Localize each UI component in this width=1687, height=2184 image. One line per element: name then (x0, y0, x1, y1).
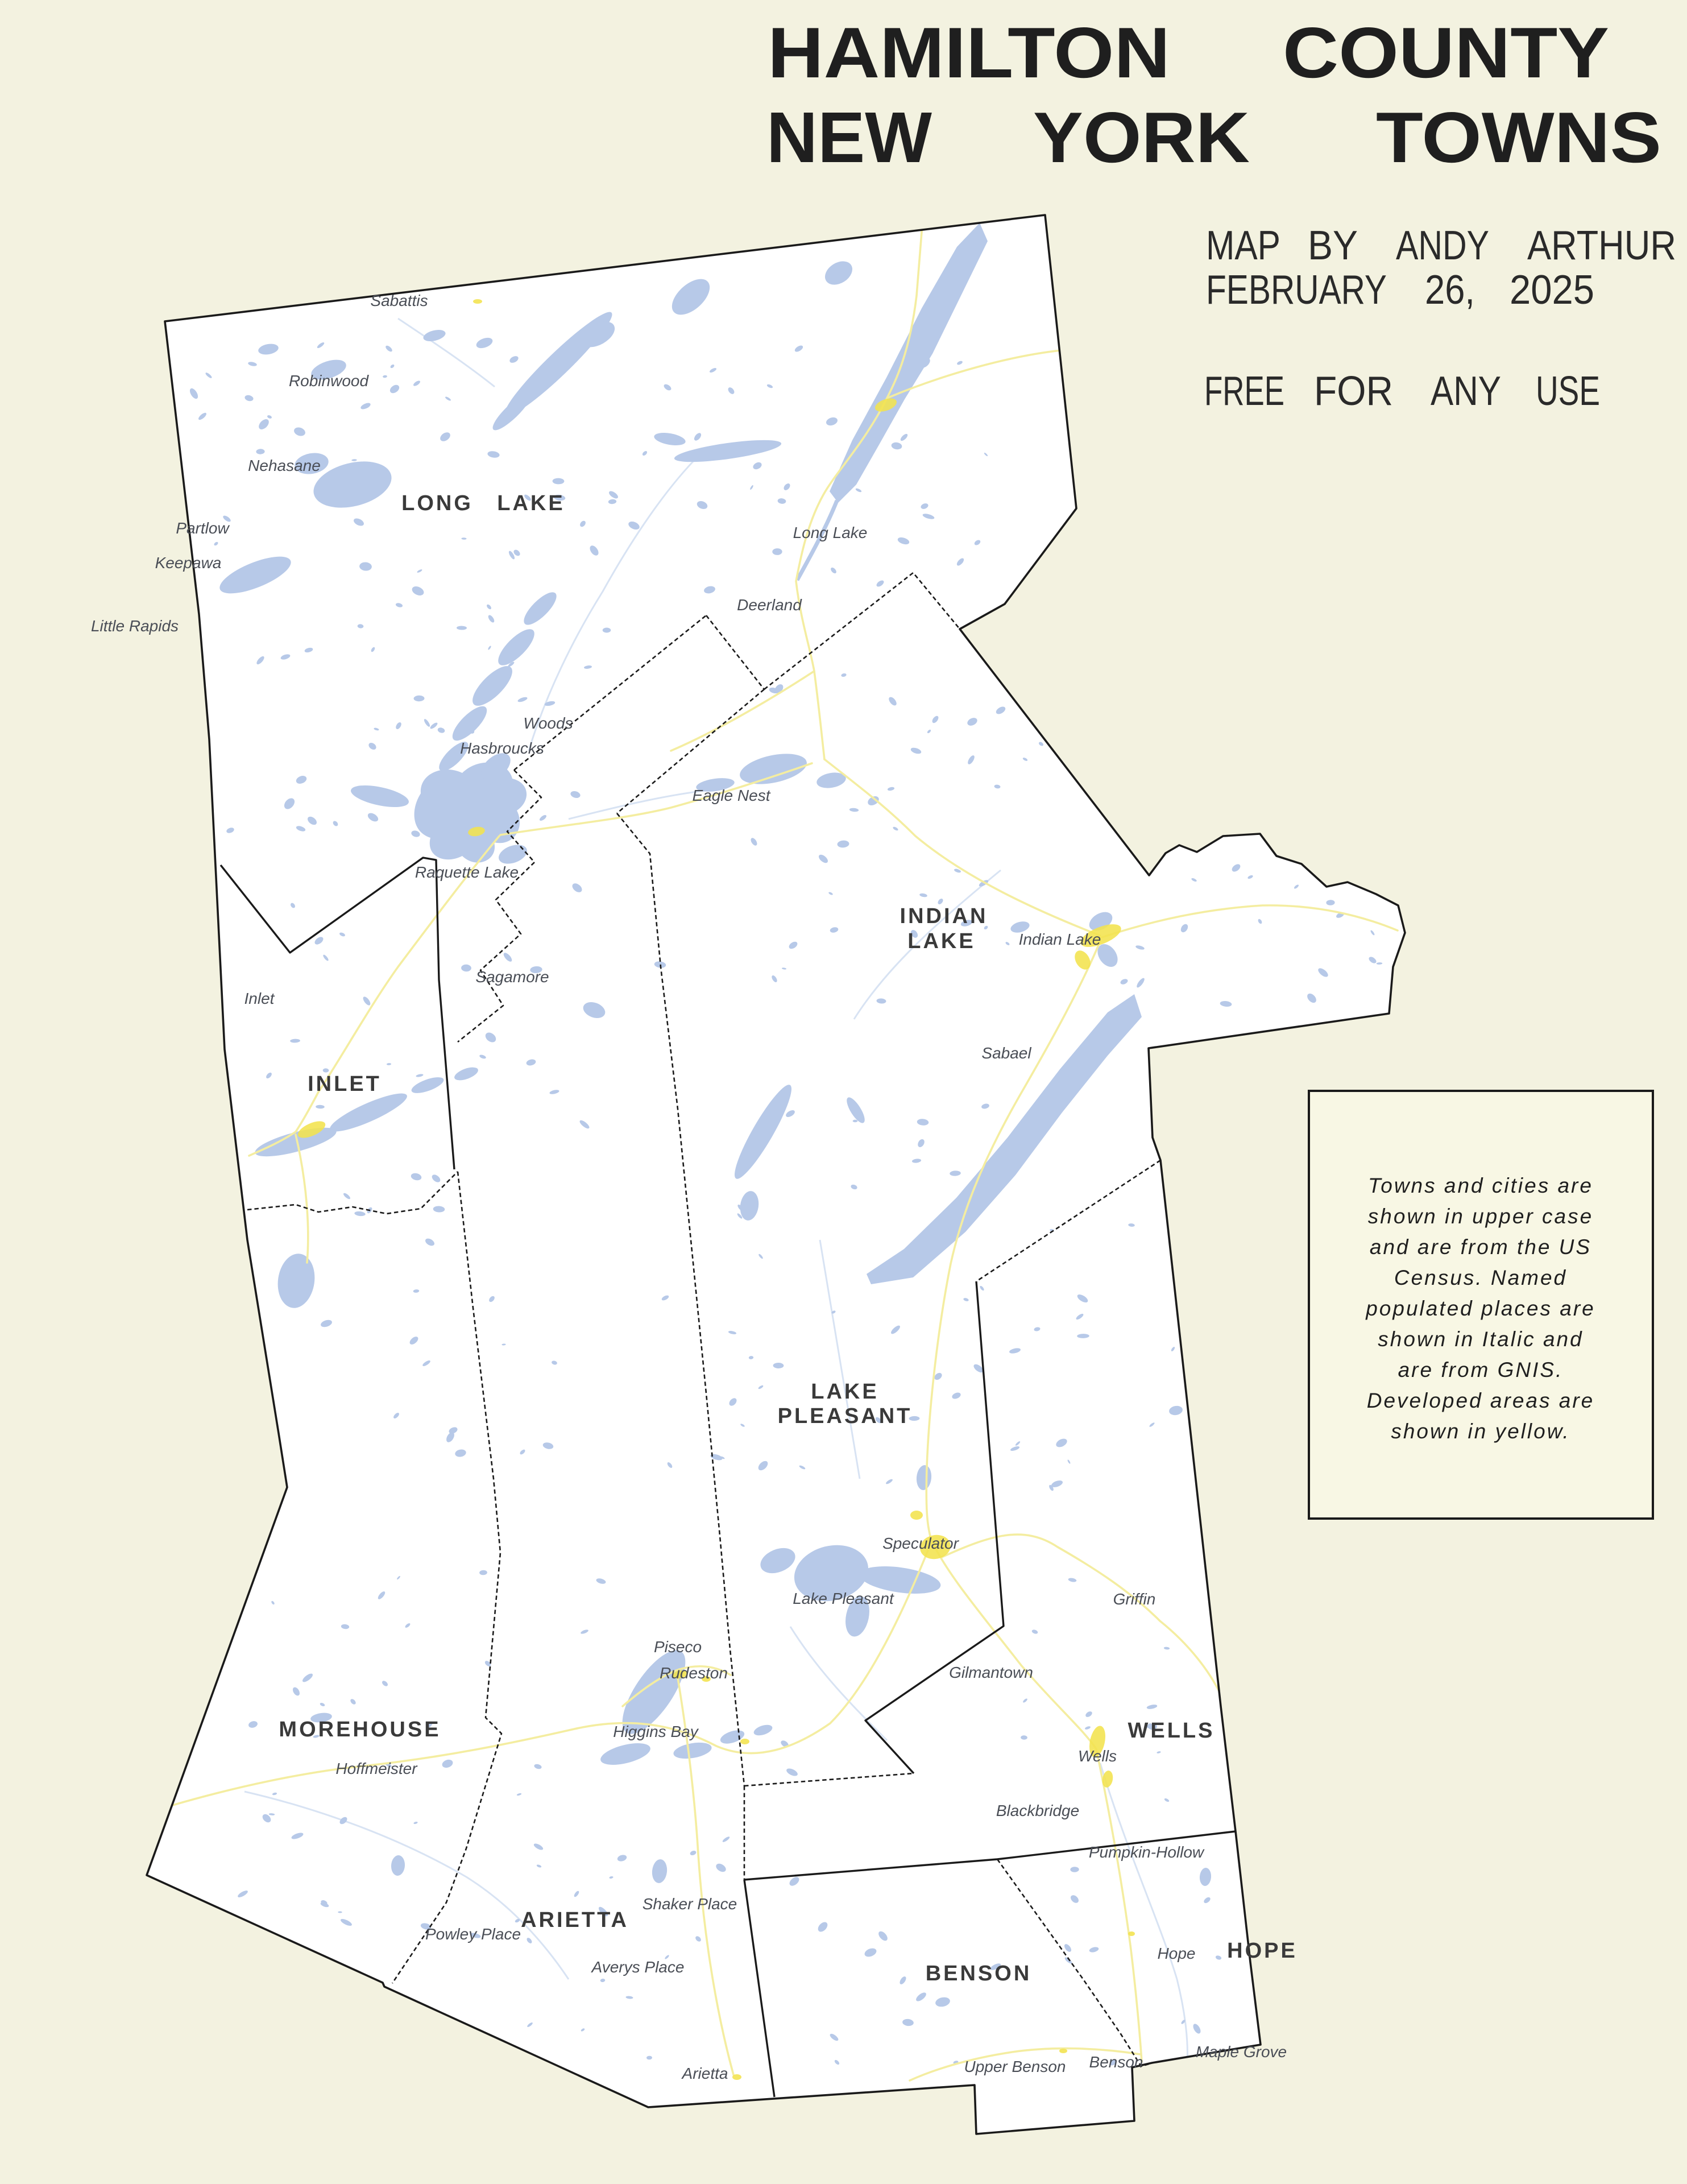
svg-text:FOR: FOR (1314, 369, 1393, 414)
svg-text:Towns and cities are: Towns and cities are (1368, 1174, 1593, 1197)
svg-text:Griffin: Griffin (1113, 1590, 1156, 1608)
svg-text:Census. Named: Census. Named (1394, 1266, 1567, 1289)
svg-text:Deerland: Deerland (737, 596, 802, 614)
svg-text:ARIETTA: ARIETTA (521, 1908, 629, 1932)
svg-text:Blackbridge: Blackbridge (996, 1802, 1079, 1819)
svg-text:Hope: Hope (1158, 1945, 1196, 1962)
svg-text:FEBRUARY: FEBRUARY (1206, 267, 1387, 313)
svg-text:Keepawa: Keepawa (155, 554, 222, 572)
svg-text:Benson: Benson (1089, 2053, 1143, 2071)
svg-text:Partlow: Partlow (176, 519, 230, 537)
svg-text:Nehasane: Nehasane (248, 457, 321, 474)
svg-text:Robinwood: Robinwood (289, 372, 370, 390)
svg-text:Pumpkin-Hollow: Pumpkin-Hollow (1089, 1843, 1205, 1861)
svg-text:HOPE: HOPE (1227, 1939, 1298, 1963)
svg-text:Rudeston: Rudeston (660, 1664, 728, 1682)
svg-text:ANY: ANY (1431, 369, 1501, 414)
svg-text:26,: 26, (1425, 267, 1475, 313)
svg-text:USE: USE (1536, 369, 1600, 414)
svg-text:Hasbroucks: Hasbroucks (460, 739, 544, 757)
svg-text:Eagle Nest: Eagle Nest (693, 787, 771, 804)
svg-text:Lake Pleasant: Lake Pleasant (793, 1590, 894, 1607)
svg-text:LAKE: LAKE (907, 929, 975, 953)
svg-text:MAP: MAP (1206, 223, 1280, 268)
svg-text:Sabattis: Sabattis (370, 292, 428, 309)
svg-text:Higgins Bay: Higgins Bay (613, 1723, 699, 1740)
svg-text:shown in Italic and: shown in Italic and (1378, 1327, 1583, 1351)
svg-text:FREE: FREE (1204, 369, 1284, 414)
svg-text:Averys Place: Averys Place (591, 1958, 685, 1976)
svg-text:populated places are: populated places are (1365, 1297, 1595, 1320)
svg-text:Inlet: Inlet (244, 990, 275, 1007)
svg-text:Developed areas are: Developed areas are (1367, 1389, 1595, 1412)
svg-text:Shaker Place: Shaker Place (643, 1895, 737, 1913)
svg-text:LAKE: LAKE (497, 491, 565, 515)
svg-text:shown in upper case: shown in upper case (1368, 1205, 1593, 1228)
svg-text:LONG: LONG (401, 491, 473, 515)
svg-text:PLEASANT: PLEASANT (778, 1404, 913, 1428)
svg-text:BY: BY (1308, 223, 1358, 268)
svg-text:Powley Place: Powley Place (425, 1925, 521, 1943)
svg-text:Wells: Wells (1078, 1747, 1117, 1765)
svg-text:HAMILTON: HAMILTON (768, 13, 1170, 93)
svg-text:YORK: YORK (1033, 97, 1250, 177)
svg-text:Upper Benson: Upper Benson (964, 2058, 1066, 2075)
svg-text:Maple Grove: Maple Grove (1196, 2043, 1287, 2061)
svg-text:WELLS: WELLS (1128, 1719, 1215, 1743)
svg-text:NEW: NEW (766, 97, 932, 177)
svg-text:ANDY: ANDY (1396, 223, 1489, 268)
svg-text:Indian Lake: Indian Lake (1019, 930, 1101, 948)
svg-text:LAKE: LAKE (811, 1380, 878, 1404)
svg-text:Hoffmeister: Hoffmeister (335, 1760, 418, 1777)
svg-text:Sabael: Sabael (981, 1044, 1031, 1062)
svg-text:INLET: INLET (308, 1072, 382, 1096)
svg-text:MOREHOUSE: MOREHOUSE (279, 1718, 441, 1742)
svg-text:BENSON: BENSON (926, 1962, 1032, 1986)
svg-text:Raquette Lake: Raquette Lake (415, 863, 519, 881)
svg-text:Speculator: Speculator (882, 1534, 960, 1552)
svg-text:Little Rapids: Little Rapids (91, 617, 179, 635)
svg-text:COUNTY: COUNTY (1283, 13, 1609, 93)
svg-text:shown in yellow.: shown in yellow. (1391, 1420, 1570, 1443)
svg-text:2025: 2025 (1510, 267, 1594, 313)
svg-text:Gilmantown: Gilmantown (949, 1664, 1033, 1681)
svg-text:Sagamore: Sagamore (475, 968, 549, 986)
svg-text:INDIAN: INDIAN (900, 904, 988, 928)
svg-text:Piseco: Piseco (654, 1638, 702, 1656)
svg-text:Long Lake: Long Lake (793, 524, 868, 541)
svg-text:Woods: Woods (523, 714, 573, 732)
svg-text:Arietta: Arietta (681, 2065, 728, 2082)
svg-text:ARTHUR: ARTHUR (1527, 223, 1676, 268)
svg-text:TOWNS: TOWNS (1376, 97, 1661, 177)
svg-text:and are from the US: and are from the US (1370, 1235, 1591, 1259)
svg-text:are from GNIS.: are from GNIS. (1398, 1358, 1564, 1381)
